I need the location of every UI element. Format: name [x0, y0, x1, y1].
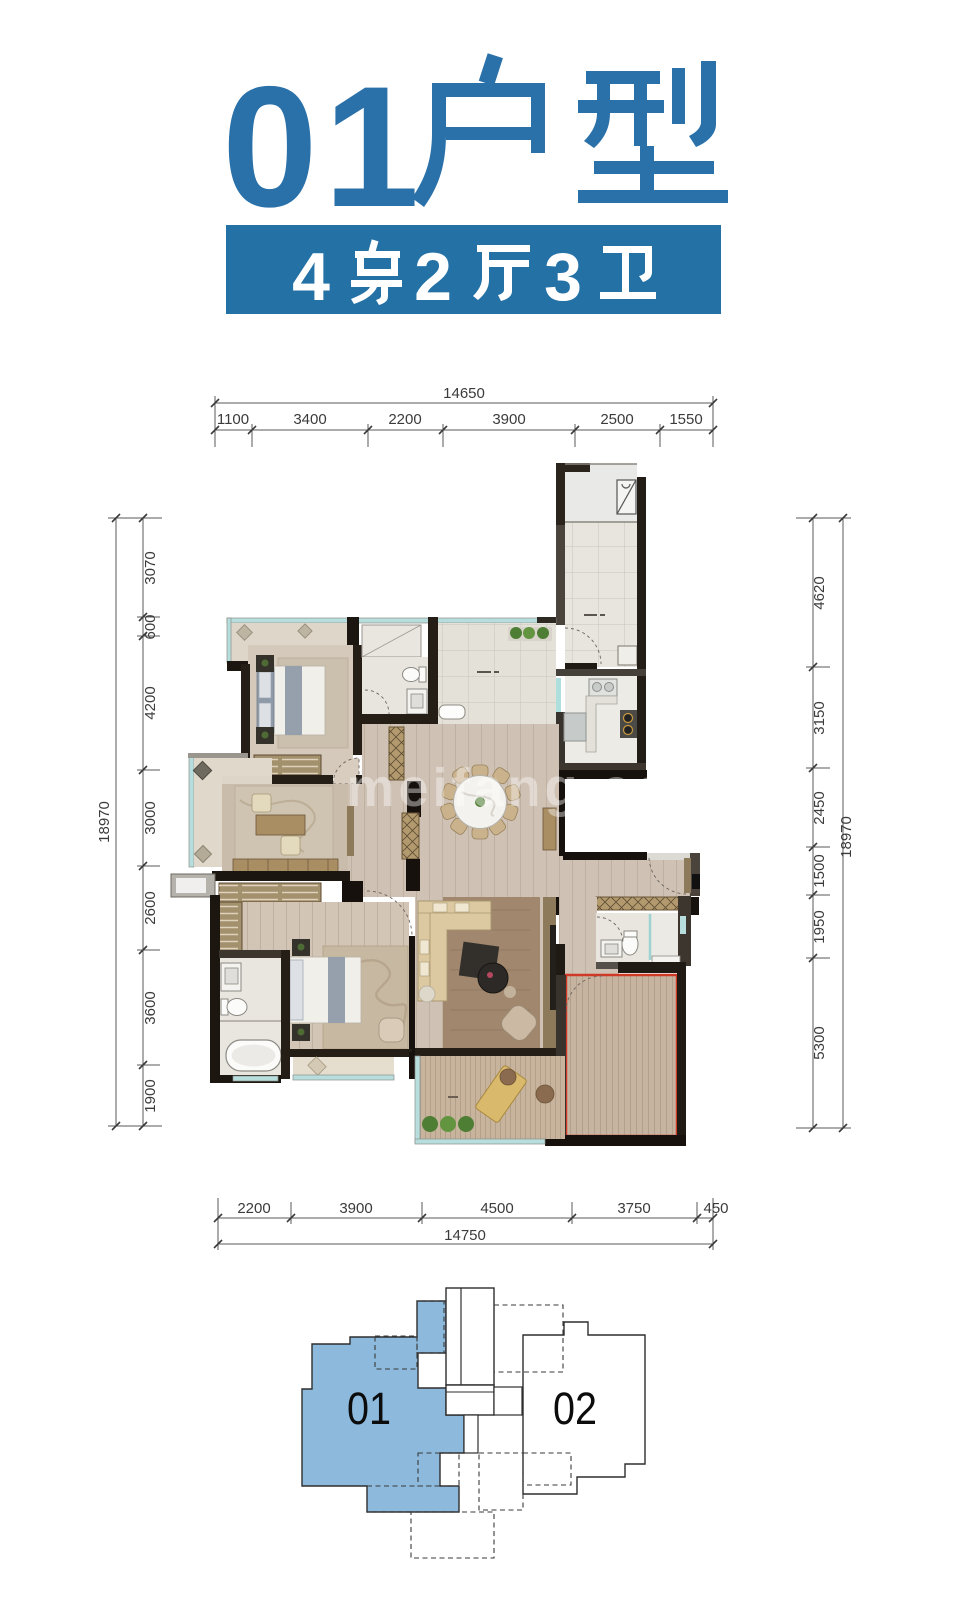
svg-text:3000: 3000 [142, 801, 159, 834]
svg-text:1500: 1500 [811, 854, 828, 887]
svg-text:3600: 3600 [142, 991, 159, 1024]
svg-text:2200: 2200 [388, 411, 421, 428]
svg-text:14750: 14750 [444, 1227, 486, 1244]
svg-text:2200: 2200 [237, 1200, 270, 1217]
svg-text:01: 01 [222, 51, 425, 243]
svg-text:3400: 3400 [293, 411, 326, 428]
svg-text:1100: 1100 [217, 411, 249, 428]
svg-text:3070: 3070 [142, 551, 159, 584]
svg-text:02: 02 [553, 1383, 597, 1434]
svg-text:1550: 1550 [669, 411, 702, 428]
svg-text:4500: 4500 [480, 1200, 513, 1217]
svg-text:3150: 3150 [811, 701, 828, 734]
svg-text:meifang.com: meifang.com [346, 758, 723, 818]
svg-text:18970: 18970 [838, 816, 855, 858]
svg-text:18970: 18970 [96, 801, 113, 843]
svg-text:5300: 5300 [811, 1026, 828, 1059]
svg-text:450: 450 [703, 1200, 728, 1217]
svg-text:14650: 14650 [443, 385, 485, 402]
svg-text:2500: 2500 [600, 411, 633, 428]
svg-text:4620: 4620 [811, 576, 828, 609]
svg-text:2: 2 [414, 239, 452, 315]
svg-text:3: 3 [544, 239, 582, 315]
svg-text:2450: 2450 [811, 791, 828, 824]
svg-text:1950: 1950 [811, 910, 828, 943]
svg-text:3750: 3750 [617, 1200, 650, 1217]
svg-text:3900: 3900 [339, 1200, 372, 1217]
svg-text:4: 4 [292, 239, 330, 315]
svg-text:4200: 4200 [142, 686, 159, 719]
svg-text:3900: 3900 [492, 411, 525, 428]
svg-text:600: 600 [142, 614, 159, 639]
svg-text:01: 01 [347, 1383, 391, 1434]
svg-text:1900: 1900 [142, 1079, 159, 1112]
svg-text:2600: 2600 [142, 891, 159, 924]
